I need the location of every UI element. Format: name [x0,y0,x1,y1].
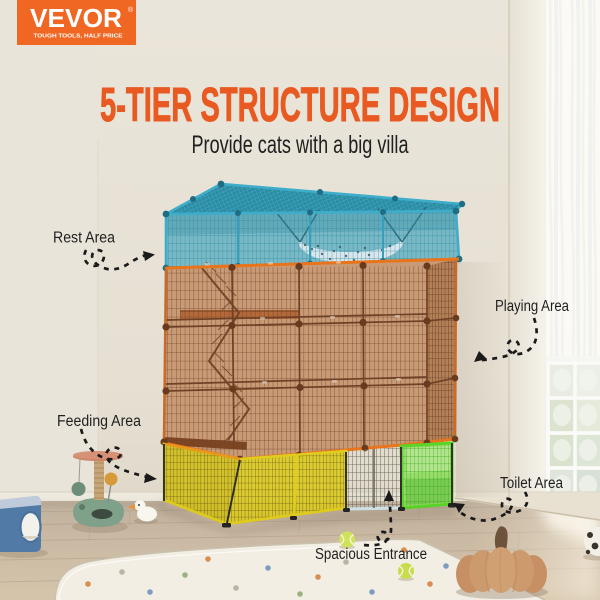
svg-text:Feeding Area: Feeding Area [57,413,141,430]
svg-text:Toilet Area: Toilet Area [500,475,563,492]
svg-text:®: ® [128,6,134,14]
svg-text:VEVOR: VEVOR [30,3,122,33]
svg-text:Rest Area: Rest Area [53,230,115,247]
svg-text:Spacious Entrance: Spacious Entrance [315,546,427,563]
svg-text:Provide cats with a big villa: Provide cats with a big villa [192,131,409,159]
svg-text:5-TIER STRUCTURE DESIGN: 5-TIER STRUCTURE DESIGN [100,79,500,132]
svg-text:Playing Area: Playing Area [495,298,569,315]
svg-text:TOUGH TOOLS, HALF PRICE: TOUGH TOOLS, HALF PRICE [34,34,123,40]
